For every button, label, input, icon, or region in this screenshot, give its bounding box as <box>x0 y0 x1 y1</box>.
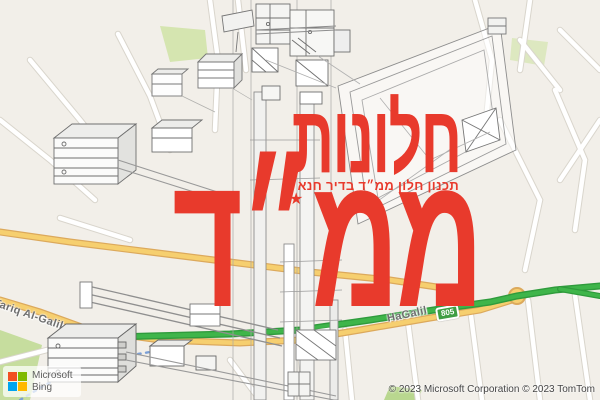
bing-maps-canvas[interactable]: Tariq Al-Galil HaGalil 805 805 <box>0 0 600 400</box>
road-label-tariq-al-galil: Tariq Al-Galil <box>0 297 65 332</box>
map-attribution: © 2023 Microsoft Corporation © 2023 TomT… <box>389 384 595 395</box>
logo-company: Microsoft <box>32 370 73 381</box>
bing-logo-text: Microsoft Bing <box>32 370 73 393</box>
bing-logo[interactable]: Microsoft Bing <box>3 366 81 397</box>
logo-product: Bing <box>32 382 52 393</box>
microsoft-logo-icon <box>8 372 27 391</box>
star-icon: ★ <box>289 189 303 209</box>
overlay-title-mamad: ממ״ד <box>172 146 480 336</box>
